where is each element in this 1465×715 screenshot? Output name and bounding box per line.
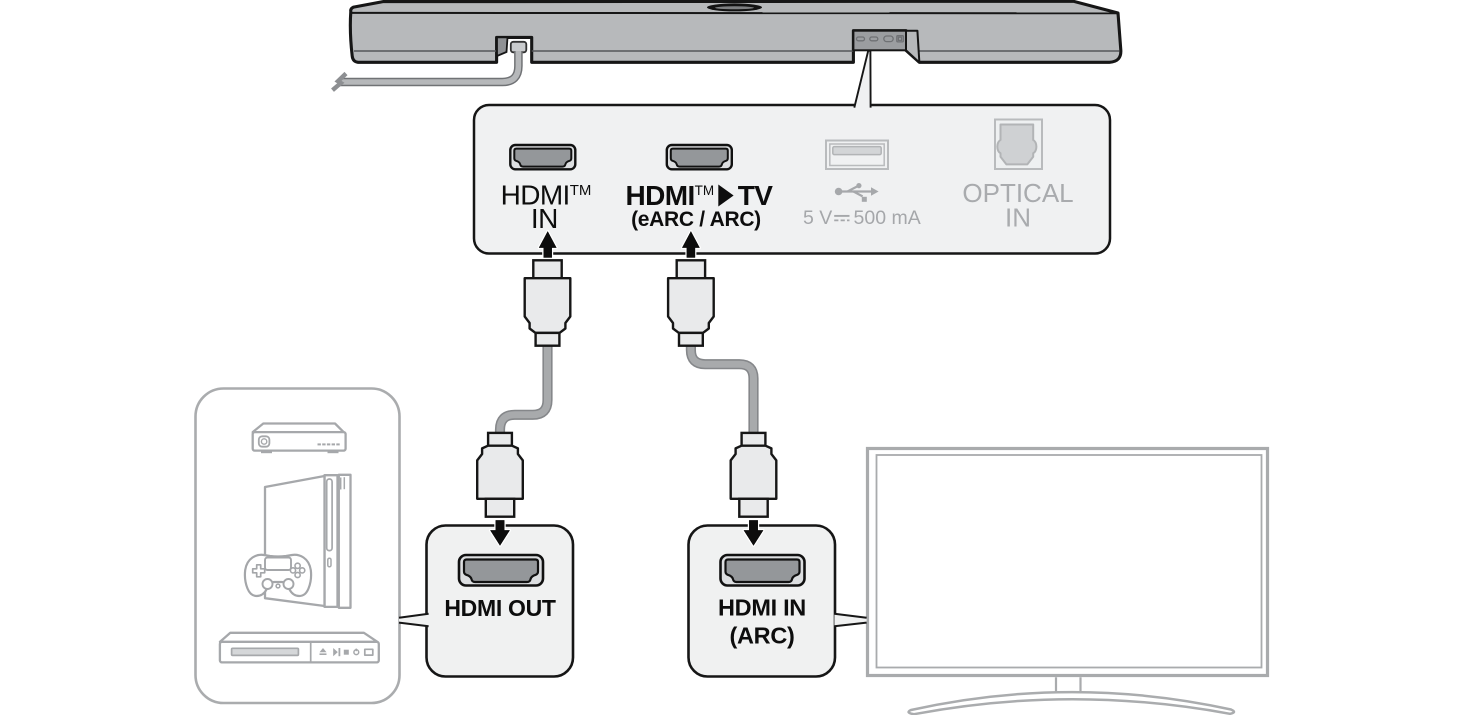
svg-text:IN: IN	[531, 203, 558, 234]
svg-text:IN: IN	[1005, 202, 1031, 232]
svg-text:5 V: 5 V	[803, 207, 832, 229]
svg-text:500 mA: 500 mA	[854, 207, 921, 229]
svg-text:TV: TV	[738, 180, 774, 211]
svg-text:(ARC): (ARC)	[729, 623, 794, 649]
svg-text:(eARC / ARC): (eARC / ARC)	[631, 208, 761, 231]
svg-text:HDMI IN: HDMI IN	[718, 595, 806, 621]
svg-text:HDMI OUT: HDMI OUT	[444, 595, 556, 621]
